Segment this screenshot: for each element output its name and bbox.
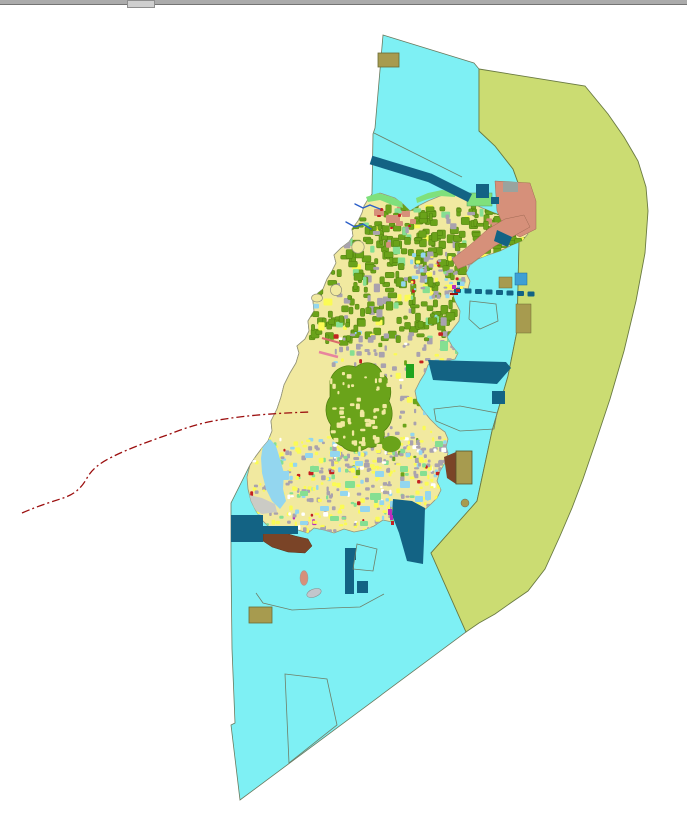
east-khaki-tall-block xyxy=(516,304,531,333)
east-blue-block xyxy=(515,273,527,285)
w-islet-3 xyxy=(312,294,323,302)
nw-islet-2 xyxy=(330,284,341,295)
south-khaki-block xyxy=(249,607,272,623)
east-coast-teal-band xyxy=(428,360,511,384)
north-khaki-block xyxy=(378,53,399,67)
east-khaki-block xyxy=(499,277,512,288)
map-window xyxy=(0,0,687,821)
nw-islet-1 xyxy=(352,241,364,253)
ne-reservoir-2 xyxy=(491,197,499,204)
se-khaki-dot xyxy=(461,499,469,507)
horizontal-scrollbar[interactable] xyxy=(0,0,687,5)
map-canvas[interactable] xyxy=(0,6,687,821)
south-salmon-islet xyxy=(300,571,308,586)
ne-reservoir-1 xyxy=(476,184,489,198)
forest-satellite xyxy=(381,436,401,452)
urban-green-block xyxy=(406,364,414,378)
east-teal-square xyxy=(492,391,505,404)
ne-gray-block xyxy=(503,182,518,192)
